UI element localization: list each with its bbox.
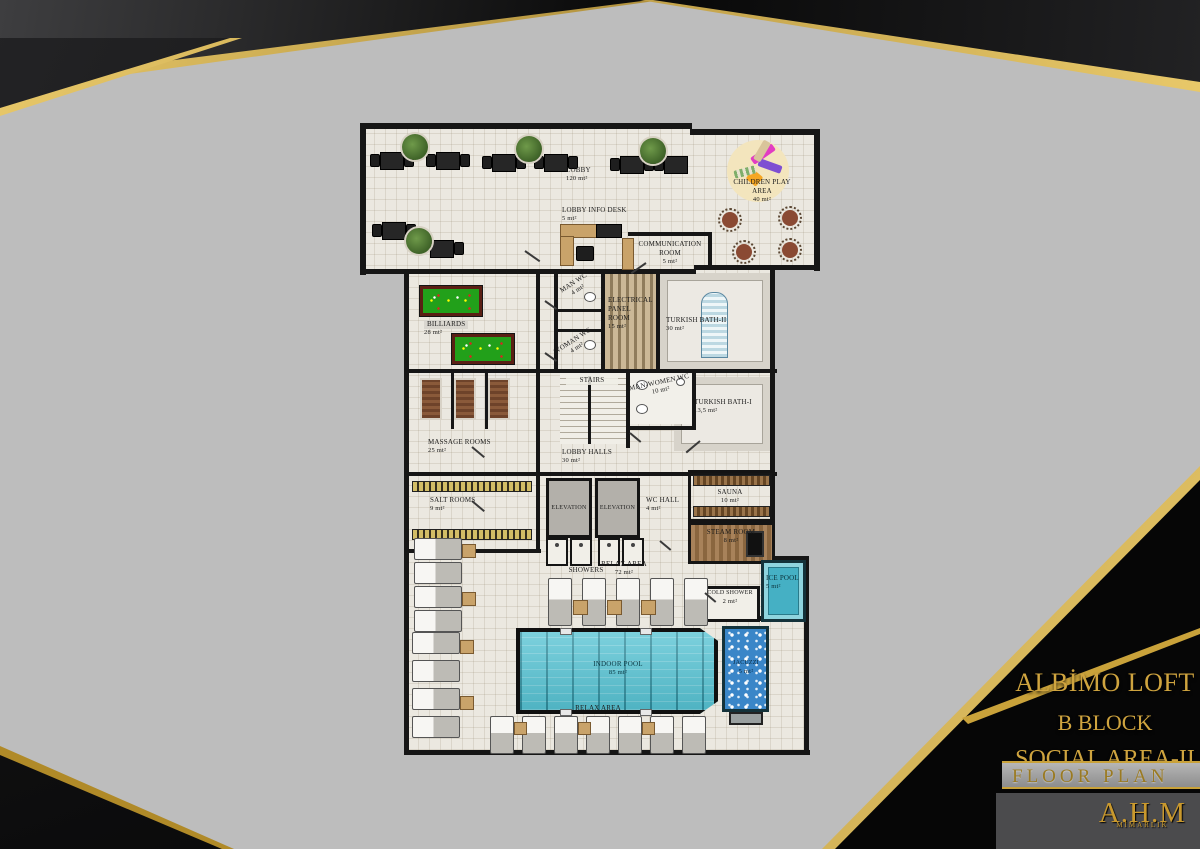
side-table [460,640,474,654]
massage-bed [488,378,510,420]
kids-table [722,212,738,228]
company-logo: A.H.M MİMARLIK [1099,797,1186,829]
logo-panel: A.H.M MİMARLIK [996,793,1200,849]
wall [554,309,604,312]
chair [610,158,620,171]
elevator: ELEVATION [546,478,592,538]
lounger [412,632,460,654]
lounger [618,716,642,754]
room-label-turkish-bath-2: TURKISH BATH-II30 mt² [666,316,740,334]
floor-plan-sheet: ELEVATION ELEVATION [0,0,1200,849]
room-label-ice-pool: ICE POOL5 mt² [766,574,806,592]
shower-stall [570,538,592,566]
elevator-label: ELEVATION [551,505,586,511]
wall [536,272,540,372]
massage-bed [454,378,476,420]
lounger [490,716,514,754]
billiard-table [452,334,514,364]
room-label-jacuzzi: JACUZZI5 mt² [724,660,768,676]
kids-table [782,210,798,226]
room-label-lobby: LOBBY120 mt² [566,166,610,184]
side-table [642,722,655,735]
lounger [548,578,572,626]
stair-divider [588,376,591,444]
salt-wall [412,481,532,492]
room-label-stairs: STAIRS [566,376,618,385]
lounger [412,688,460,710]
lounger [554,716,578,754]
jacuzzi-step [729,712,763,725]
side-table [514,722,527,735]
chair [454,242,464,255]
massage-bed [420,378,442,420]
room-label-billiards: BILLIARDS28 mt² [424,320,494,338]
chair [460,154,470,167]
toilet [636,404,648,414]
wall [360,123,366,275]
lobby-table [380,152,404,170]
side-table [462,544,476,558]
chair [482,156,492,169]
block-title: B BLOCK [1012,710,1198,736]
room-label-relax-area: RELAX AREA72 mt² [592,560,656,578]
room-label-electrical-panel-room: ELECTRICAL PANEL ROOM15 mt² [608,296,654,332]
info-desk-top [596,224,622,238]
chair [372,224,382,237]
desk-chair [576,246,594,261]
room-label-turkish-bath-1: TURKISH BATH-I13,5 mt² [694,398,768,416]
sauna-bench [693,506,770,517]
wall [690,129,820,135]
wall [814,129,820,271]
billiard-table [420,286,482,316]
side-table [573,600,588,615]
side-table [607,600,622,615]
room-label-indoor-pool: INDOOR POOL85 mt² [586,660,650,678]
lobby-table [492,154,516,172]
room-label-relax-area-2: RELAX AREA [568,704,628,713]
project-title: ALBİMO LOFT [1012,668,1198,698]
side-table [462,592,476,606]
room-label-children-play-area: CHILDREN PLAY AREA40 mt² [724,178,800,205]
room-label-salt-rooms: SALT ROOMS9 mt² [430,496,500,514]
room-label-lobby-halls: LOBBY HALLS30 mt² [562,448,626,466]
elevator-label: ELEVATION [600,505,635,511]
shower-stall [546,538,568,566]
chair [370,154,380,167]
side-table [460,696,474,710]
lobby-table [382,222,406,240]
lounger [414,586,462,608]
kids-table [736,244,752,260]
drawing-type-label: FLOOR PLAN [1012,766,1169,787]
info-desk-counter [560,236,574,266]
side-table [578,722,591,735]
wall [694,265,820,270]
lounger [682,716,706,754]
room-label-massage-rooms: MASSAGE ROOMS25 mt² [428,438,512,456]
lobby-table [430,240,454,258]
plant [640,138,666,164]
chair [426,154,436,167]
title-block: ALBİMO LOFT B BLOCK SOCIAL AREA-II [1012,668,1198,773]
lounger [412,716,460,738]
pool-ladder [640,628,652,635]
wall [536,476,540,553]
lounger [414,562,462,584]
wall [656,269,660,373]
room-label-steam-room: STEAM ROOM8 mt² [698,528,764,546]
wall [628,232,712,236]
room-label-wc-hall: WC HALL4 mt² [646,496,690,514]
drawing-type-strip: FLOOR PLAN [1002,761,1200,789]
pool-ladder [560,628,572,635]
lobby-table [664,156,688,174]
wall [601,269,605,373]
lobby-table [544,154,568,172]
toilet [584,292,596,302]
room-label-info-desk: LOBBY INFO DESK5 mt² [562,206,634,224]
plant [516,136,542,162]
elevator: ELEVATION [595,478,640,538]
sauna-bench [693,475,770,486]
wall [360,123,692,129]
wall [536,373,540,472]
room-label-communication-room: COMMUNICATION ROOM5 mt² [630,240,710,267]
plant [402,134,428,160]
room-label-cold-shower: COLD SHOWER2 mt² [702,590,758,606]
plant [406,228,432,254]
wall [404,272,409,755]
lounger [414,610,462,632]
wall [626,426,696,430]
side-table [641,600,656,615]
wall [360,269,696,274]
lounger [414,538,462,560]
pool-ladder [640,709,652,716]
wall [404,369,777,373]
lobby-table [620,156,644,174]
room-label-sauna: SAUNA10 mt² [700,488,760,506]
lounger [412,660,460,682]
kids-table [782,242,798,258]
lobby-table [436,152,460,170]
